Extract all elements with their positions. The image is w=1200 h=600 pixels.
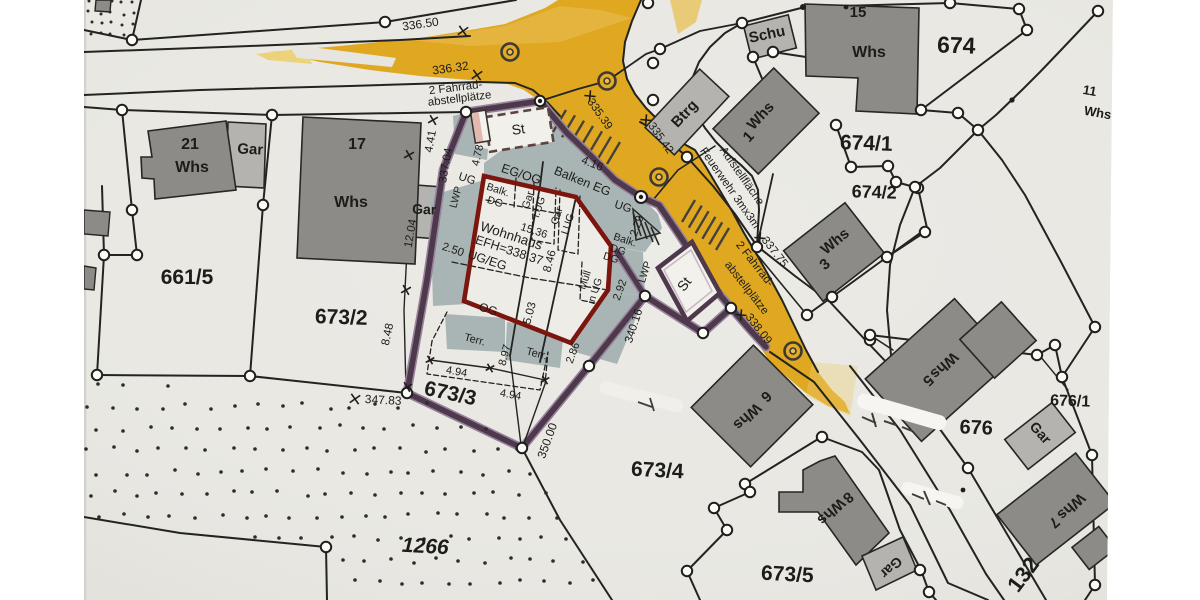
svg-text:661/5: 661/5 (161, 266, 214, 289)
svg-text:St: St (510, 120, 526, 138)
svg-text:11: 11 (1082, 82, 1098, 99)
svg-text:Whs: Whs (852, 44, 886, 61)
svg-text:347.83: 347.83 (365, 392, 403, 408)
svg-text:Gar: Gar (412, 201, 437, 218)
svg-text:676: 676 (959, 416, 993, 439)
svg-text:Whs: Whs (175, 159, 209, 176)
svg-text:674/2: 674/2 (851, 181, 897, 203)
svg-text:673/2: 673/2 (315, 305, 368, 330)
svg-text:1266: 1266 (401, 534, 449, 559)
svg-text:673/5: 673/5 (760, 562, 814, 588)
svg-text:21: 21 (181, 136, 199, 153)
svg-text:676/1: 676/1 (1050, 392, 1091, 410)
svg-text:674: 674 (937, 31, 976, 58)
svg-text:Gar: Gar (237, 140, 264, 158)
svg-text:17: 17 (348, 136, 366, 153)
svg-text:673/4: 673/4 (630, 458, 684, 484)
svg-text:15: 15 (850, 4, 867, 21)
svg-text:674/1: 674/1 (840, 131, 894, 156)
svg-text:Whs: Whs (334, 194, 368, 211)
